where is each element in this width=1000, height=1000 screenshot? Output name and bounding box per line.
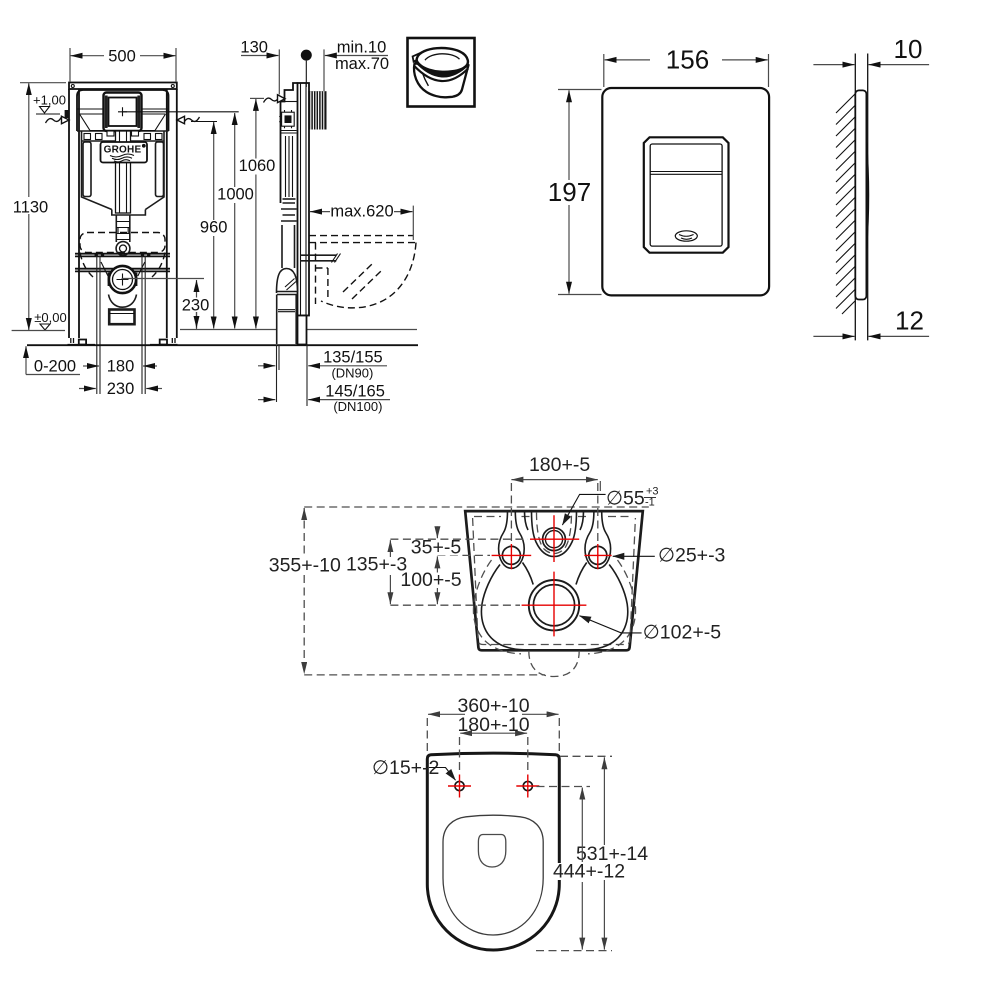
svg-text:230: 230 (107, 380, 135, 398)
svg-text:∅102+-5: ∅102+-5 (643, 622, 721, 644)
svg-text:∅25+-3: ∅25+-3 (658, 545, 725, 567)
svg-text:135+-3: 135+-3 (346, 554, 407, 576)
svg-text:1130: 1130 (13, 199, 48, 217)
svg-text:12: 12 (895, 306, 924, 336)
svg-text:1000: 1000 (217, 186, 254, 204)
svg-text:500: 500 (108, 48, 136, 66)
svg-text:∅55: ∅55 (606, 488, 645, 510)
svg-text:230: 230 (182, 297, 210, 315)
svg-text:(DN100): (DN100) (333, 399, 382, 414)
svg-text:197: 197 (548, 177, 591, 207)
svg-text:35+-5: 35+-5 (411, 537, 462, 559)
svg-text:355+-10: 355+-10 (269, 555, 341, 577)
svg-text:±0,00: ±0,00 (34, 310, 66, 325)
svg-text:444+-12: 444+-12 (553, 861, 625, 883)
svg-text:145/165: 145/165 (325, 382, 385, 400)
svg-text:0-200: 0-200 (34, 358, 76, 376)
svg-text:max.70: max.70 (335, 55, 389, 73)
svg-text:135/155: 135/155 (323, 349, 383, 367)
svg-text:180+-10: 180+-10 (457, 714, 529, 736)
svg-text:min.10: min.10 (337, 39, 387, 57)
svg-text:GROHE: GROHE (104, 145, 142, 156)
svg-text:-1: -1 (645, 497, 655, 509)
svg-text:+1,00: +1,00 (33, 93, 66, 108)
svg-text:156: 156 (666, 45, 709, 75)
svg-text:1060: 1060 (239, 157, 276, 175)
svg-text:100+-5: 100+-5 (400, 569, 461, 591)
svg-text:180+-5: 180+-5 (529, 454, 590, 476)
svg-text:180: 180 (107, 358, 135, 376)
svg-text:10: 10 (894, 34, 923, 64)
svg-text:960: 960 (200, 219, 228, 237)
svg-text:(DN90): (DN90) (331, 366, 373, 381)
svg-text:max.620: max.620 (330, 203, 393, 221)
svg-text:130: 130 (240, 39, 268, 57)
